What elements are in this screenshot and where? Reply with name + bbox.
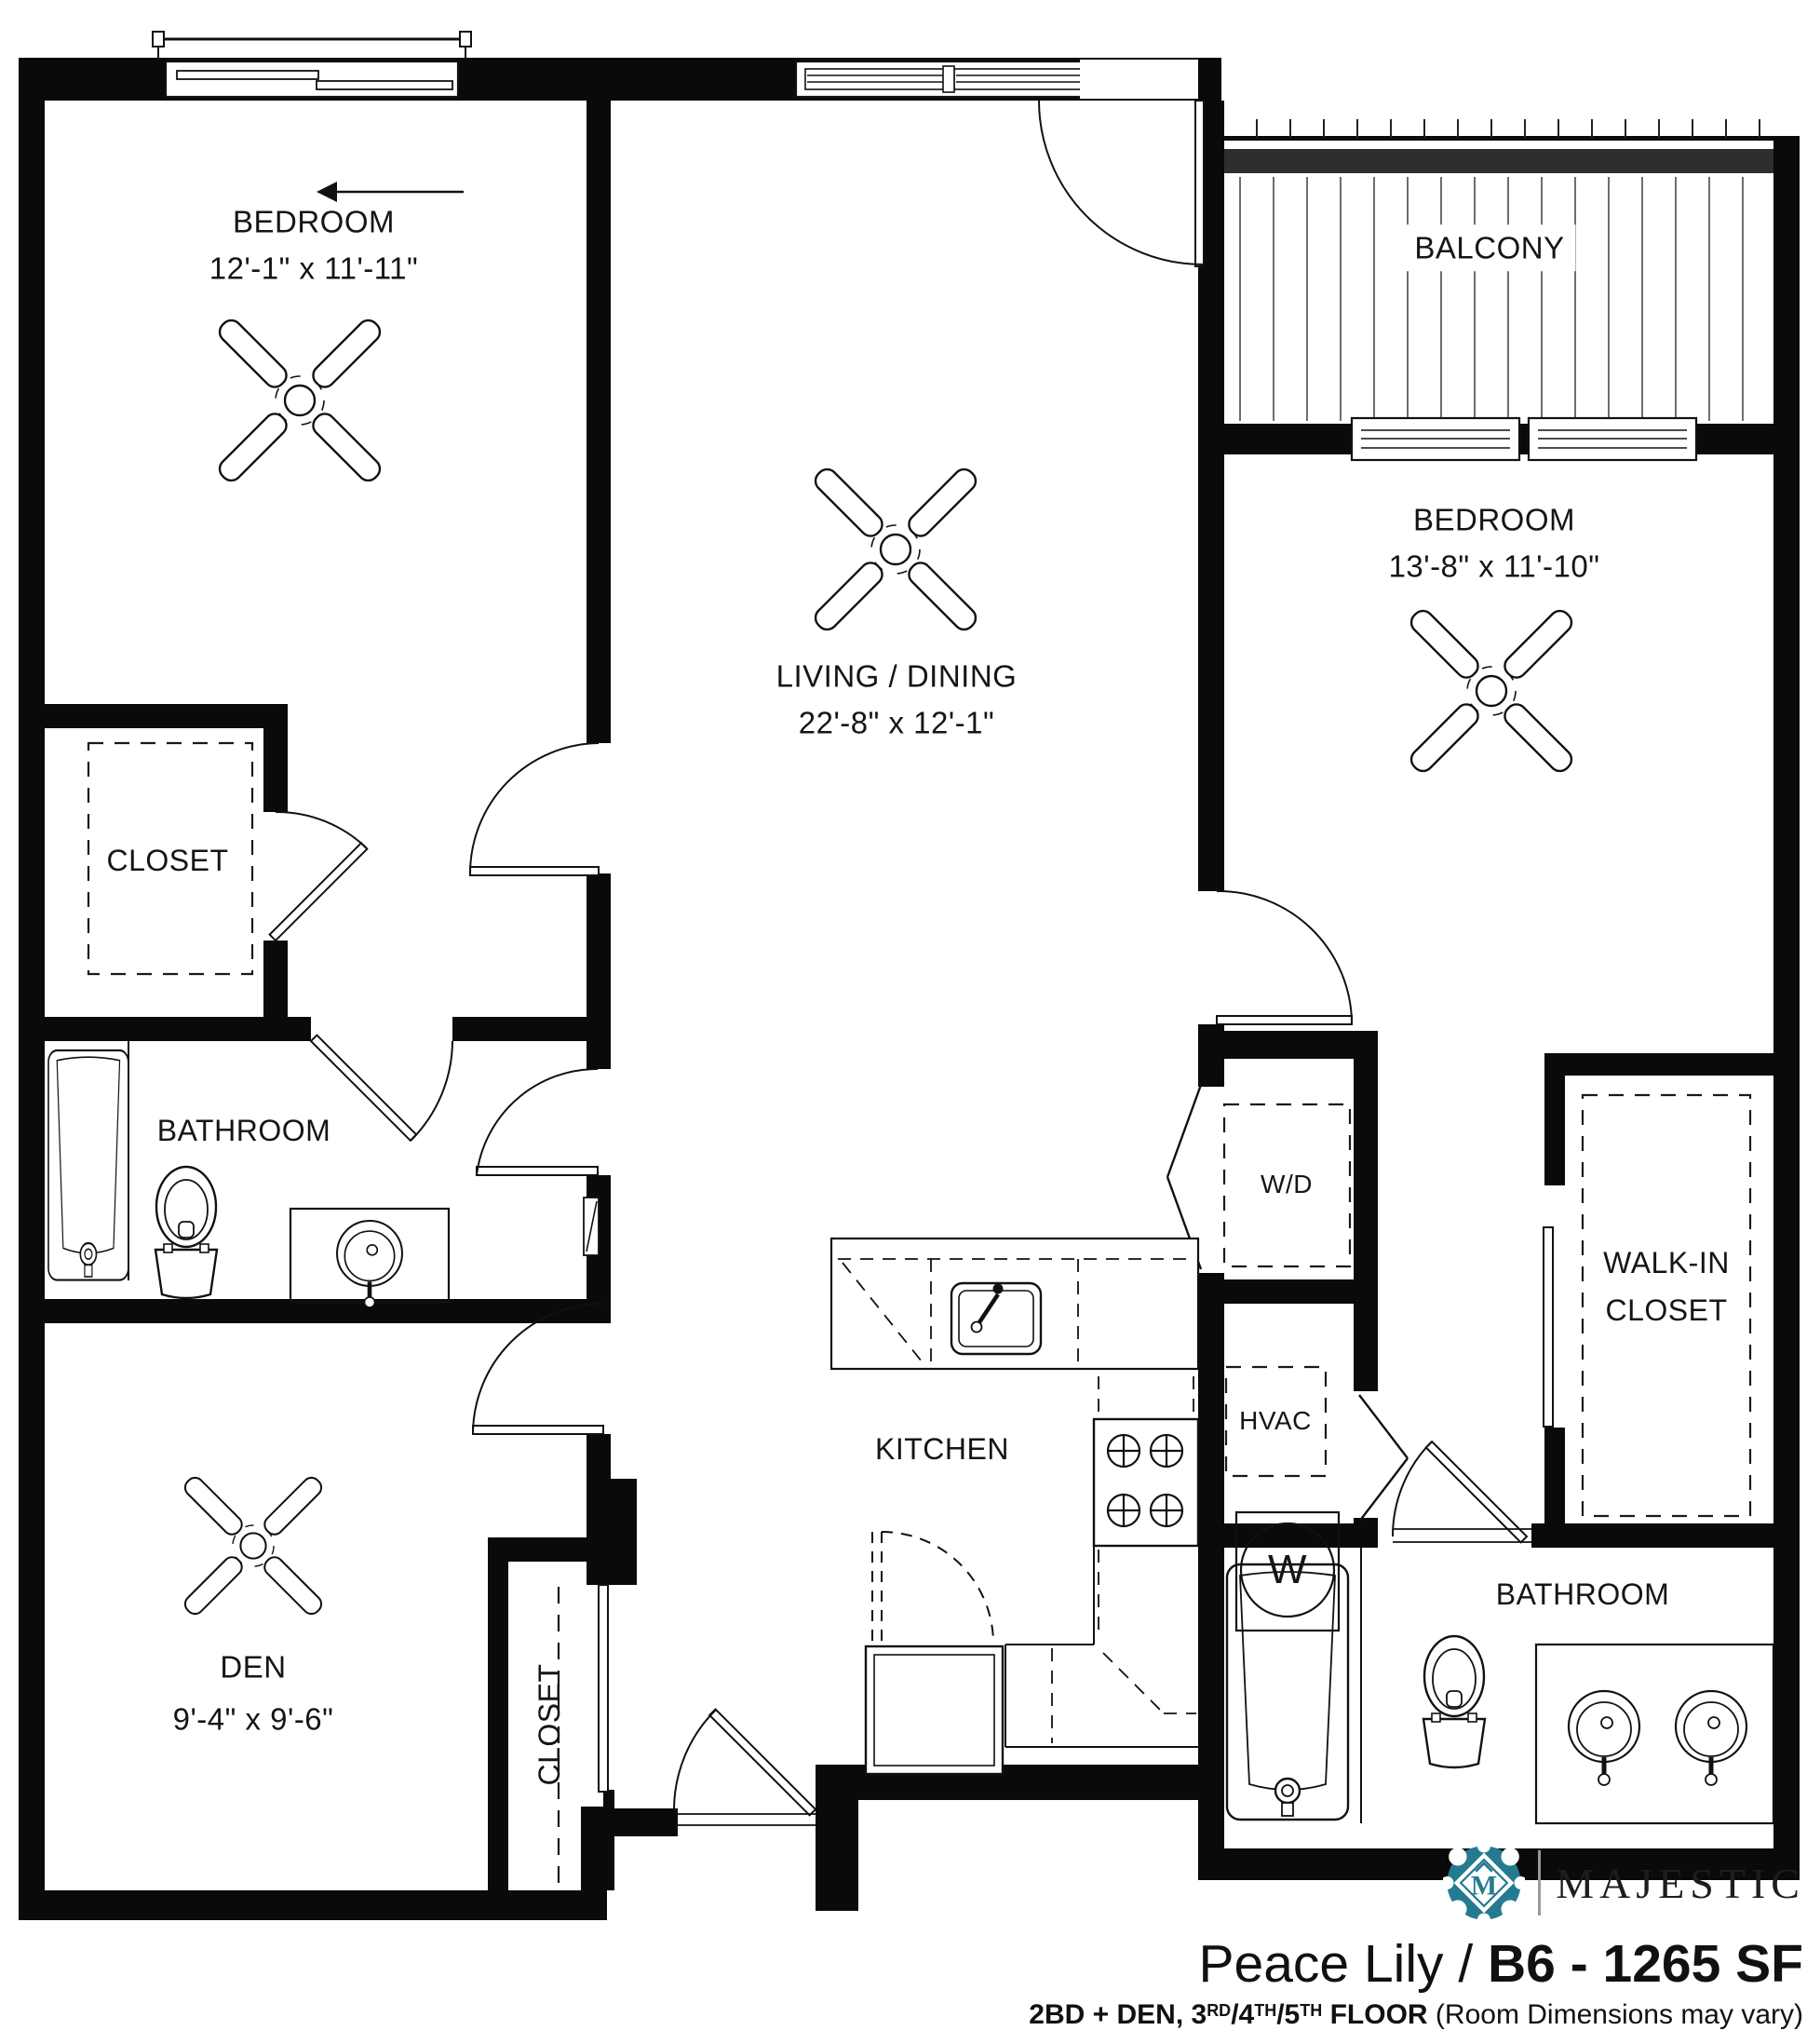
bathroom-2-label: BATHROOM: [1496, 1572, 1670, 1617]
entry-door: [674, 1710, 816, 1825]
bedroom1-door: [470, 743, 599, 875]
stove-icon: [1094, 1419, 1198, 1546]
walls: [19, 58, 1800, 1920]
bedroom-2-label: BEDROOM: [1413, 496, 1575, 543]
living-dining-dims: 22'-8" x 12'-1": [799, 699, 994, 746]
plan-title-code: B6 - 1265 SF: [1488, 1934, 1803, 1994]
kitchen-sink-icon: [951, 1283, 1041, 1354]
walkin-door-panel: [1544, 1227, 1553, 1427]
plan-title: Peace Lily / B6 - 1265 SF: [1199, 1937, 1804, 1993]
closet-1-label: CLOSET: [106, 838, 228, 883]
plan-title-name: Peace Lily /: [1199, 1934, 1489, 1994]
closet1-door: [270, 812, 368, 941]
bathroom1-door-top: [311, 1036, 452, 1141]
utility-bifold-door: [1359, 1395, 1408, 1522]
brand-name: MAJESTIC: [1556, 1859, 1805, 1908]
plan-subtitle: 2BD + DEN, 3RD/4TH/5TH FLOOR (Room Dimen…: [1029, 1998, 1803, 2032]
balcony-label: BALCONY: [1403, 224, 1575, 271]
kitchen-fixtures: [831, 1239, 1198, 1774]
sink-icon: [1569, 1691, 1639, 1785]
toilet-icon: [1423, 1636, 1485, 1767]
den-dims: 9'-4" x 9'-6": [173, 1696, 334, 1742]
bedroom2-window-right: [1529, 418, 1696, 460]
sink-icon: [1676, 1691, 1746, 1785]
pantry-door-dashed: [872, 1532, 993, 1645]
den-closet-label: CLOSET: [527, 1663, 572, 1785]
floor-plan-page: BEDROOM 12'-1" x 11'-11" LIVING / DINING…: [0, 0, 1807, 2044]
bedroom1-window: [153, 32, 471, 97]
bathroom2-door: [1393, 1442, 1531, 1542]
balcony-door: [1039, 101, 1204, 266]
bathroom-1-label: BATHROOM: [157, 1108, 331, 1153]
bathroom1-door-side: [477, 1069, 598, 1175]
ceiling-fan-icon: [1407, 606, 1575, 775]
ceiling-fan-icon: [811, 465, 979, 633]
bedroom-1-dims: 12'-1" x 11'-11": [209, 245, 418, 291]
water-heater-label: W: [1268, 1539, 1307, 1601]
majestic-logo-icon: M: [1443, 1842, 1525, 1924]
ceiling-fans: [182, 316, 1575, 1617]
walk-in-closet-label: WALK-IN CLOSET: [1603, 1239, 1730, 1334]
linen-louver-panel: [584, 1198, 599, 1255]
brand-row: M MAJESTIC: [1443, 1842, 1805, 1924]
ceiling-fan-icon: [215, 316, 384, 484]
balcony-rail-ticks: [1257, 119, 1760, 138]
kitchen-label: KITCHEN: [875, 1427, 1009, 1471]
bathtub-icon: [1227, 1564, 1348, 1820]
kitchen-lower-counter: [1005, 1546, 1198, 1747]
den-label: DEN: [220, 1644, 286, 1690]
den-closet-door-panel: [599, 1585, 608, 1792]
bathtub-icon: [48, 1050, 128, 1280]
washer-dryer-label: W/D: [1261, 1165, 1313, 1204]
toilet-icon: [155, 1167, 217, 1298]
walk-in-closet-line2: CLOSET: [1603, 1287, 1730, 1334]
ceiling-fan-icon: [182, 1474, 325, 1618]
balcony-door-opening: [1080, 60, 1198, 99]
living-dining-label: LIVING / DINING: [776, 653, 1018, 699]
fridge-icon: [866, 1646, 1003, 1774]
balcony-deck-boards: [1240, 177, 1743, 421]
walk-in-closet-line1: WALK-IN: [1603, 1239, 1730, 1287]
sink-icon: [337, 1221, 402, 1307]
logo-monogram: M: [1471, 1870, 1497, 1901]
living-window: [796, 61, 1096, 97]
bedroom-2-dims: 13'-8" x 11'-10": [1389, 543, 1600, 589]
bedroom2-window-left: [1352, 418, 1519, 460]
bedroom-1-label: BEDROOM: [233, 198, 395, 245]
brand-divider: [1538, 1850, 1541, 1915]
hvac-label: HVAC: [1239, 1401, 1312, 1441]
bedroom2-door: [1217, 891, 1352, 1024]
